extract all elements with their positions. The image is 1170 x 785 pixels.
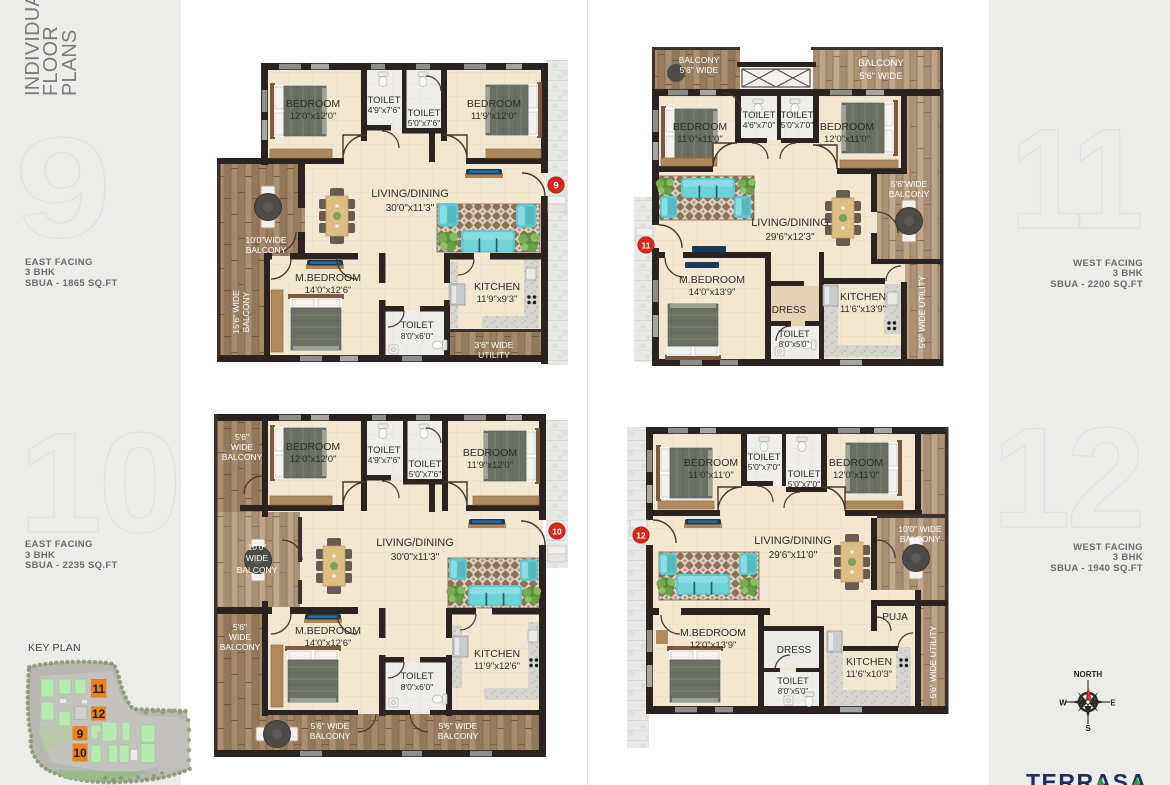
svg-text:BEDROOM: BEDROOM xyxy=(467,98,521,110)
svg-text:12'0"x11'0": 12'0"x11'0" xyxy=(824,134,870,145)
svg-text:BEDROOM: BEDROOM xyxy=(286,441,340,453)
svg-text:LIVING/DINING: LIVING/DINING xyxy=(751,217,829,229)
svg-text:11'0"x11'0": 11'0"x11'0" xyxy=(677,134,722,145)
svg-text:5'0"x7'0": 5'0"x7'0" xyxy=(748,462,780,472)
svg-text:8'0"x6'0": 8'0"x6'0" xyxy=(401,682,433,692)
svg-text:10'0" WIDE: 10'0" WIDE xyxy=(898,524,942,534)
svg-text:LIVING/DINING: LIVING/DINING xyxy=(754,535,832,547)
svg-text:8'0"x6'0": 8'0"x6'0" xyxy=(401,331,433,341)
svg-text:BALCONY: BALCONY xyxy=(237,565,278,575)
svg-text:5'6": 5'6" xyxy=(233,622,247,632)
svg-text:BALCONY: BALCONY xyxy=(889,189,930,199)
svg-text:M.BEDROOM: M.BEDROOM xyxy=(295,272,361,284)
svg-text:BALCONY: BALCONY xyxy=(858,58,904,69)
svg-text:NORTH: NORTH xyxy=(1074,670,1103,679)
svg-text:5'0"x7'6": 5'0"x7'6" xyxy=(409,469,441,479)
svg-text:5'6": 5'6" xyxy=(235,432,249,442)
svg-text:29'6"x11'0": 29'6"x11'0" xyxy=(769,550,818,561)
svg-text:UTILITY: UTILITY xyxy=(478,350,510,360)
svg-text:15'6" WIDE: 15'6" WIDE xyxy=(231,290,241,334)
svg-text:11: 11 xyxy=(92,682,105,696)
svg-text:BALCONY: BALCONY xyxy=(438,731,479,741)
svg-text:12'0"x12'0": 12'0"x12'0" xyxy=(290,111,337,122)
svg-text:14'0"x13'9": 14'0"x13'9" xyxy=(689,287,736,298)
svg-text:BALCONY: BALCONY xyxy=(679,55,720,65)
svg-text:5'6" WIDE: 5'6" WIDE xyxy=(859,71,902,82)
svg-text:LIVING/DINING: LIVING/DINING xyxy=(376,537,454,549)
svg-text:8'0"x5'0": 8'0"x5'0" xyxy=(778,687,809,696)
svg-text:PUJA: PUJA xyxy=(882,612,908,623)
svg-text:BEDROOM: BEDROOM xyxy=(684,457,738,469)
svg-text:12'0"x13'9": 12'0"x13'9" xyxy=(690,640,737,651)
svg-text:14'0"x12'6": 14'0"x12'6" xyxy=(305,638,352,649)
svg-text:KITCHEN: KITCHEN xyxy=(846,656,892,668)
svg-text:12'0"x12'0": 12'0"x12'0" xyxy=(290,454,337,465)
svg-text:BALCONY: BALCONY xyxy=(222,452,263,462)
svg-text:11'9"x12'6": 11'9"x12'6" xyxy=(474,661,520,672)
svg-text:9: 9 xyxy=(553,181,558,192)
svg-text:5'0"x7'0": 5'0"x7'0" xyxy=(781,120,813,130)
svg-text:LIVING/DINING: LIVING/DINING xyxy=(371,188,449,200)
svg-text:5'6" WIDE UTILITY: 5'6" WIDE UTILITY xyxy=(928,625,938,698)
svg-text:4'6"x7'0": 4'6"x7'0" xyxy=(743,120,775,130)
svg-text:10: 10 xyxy=(73,746,87,760)
svg-text:5'6"WIDE: 5'6"WIDE xyxy=(891,179,928,189)
svg-text:3'6" WIDE: 3'6" WIDE xyxy=(475,340,514,350)
svg-text:TOILET: TOILET xyxy=(400,320,433,331)
svg-text:11'9"x9'3": 11'9"x9'3" xyxy=(477,294,518,305)
svg-text:WIDE: WIDE xyxy=(231,442,254,452)
svg-text:BALCONY: BALCONY xyxy=(310,731,351,741)
svg-text:TOILET: TOILET xyxy=(400,671,433,682)
svg-text:12'0"x11'0": 12'0"x11'0" xyxy=(833,470,879,481)
svg-text:DRESS: DRESS xyxy=(772,305,807,316)
svg-text:WIDE: WIDE xyxy=(229,632,252,642)
svg-text:11: 11 xyxy=(642,241,651,251)
svg-text:M.BEDROOM: M.BEDROOM xyxy=(295,625,361,637)
svg-text:9: 9 xyxy=(77,727,84,741)
svg-text:11'6"x13'9": 11'6"x13'9" xyxy=(840,304,886,315)
svg-text:11'9"x12'0": 11'9"x12'0" xyxy=(467,460,513,471)
svg-text:8'0"x5'0": 8'0"x5'0" xyxy=(779,340,810,349)
svg-text:KITCHEN: KITCHEN xyxy=(474,648,520,660)
svg-text:BALCONY: BALCONY xyxy=(900,534,941,544)
svg-text:TERRASA: TERRASA xyxy=(1026,769,1148,785)
svg-text:S: S xyxy=(1085,724,1091,733)
svg-text:TOILET: TOILET xyxy=(778,329,810,339)
svg-text:11'0"x11'0": 11'0"x11'0" xyxy=(688,470,733,481)
svg-text:29'6"x12'3": 29'6"x12'3" xyxy=(765,232,815,243)
svg-text:BEDROOM: BEDROOM xyxy=(463,447,517,459)
svg-text:TOILET: TOILET xyxy=(777,676,809,686)
svg-text:BALCONY: BALCONY xyxy=(246,245,287,255)
svg-text:5'0"x7'0": 5'0"x7'0" xyxy=(788,479,820,489)
svg-text:5'0"x7'6": 5'0"x7'6" xyxy=(408,118,440,128)
svg-text:M.BEDROOM: M.BEDROOM xyxy=(679,274,745,286)
svg-text:5'6" WIDE: 5'6" WIDE xyxy=(439,721,478,731)
svg-text:12: 12 xyxy=(92,707,106,721)
svg-text:M.BEDROOM: M.BEDROOM xyxy=(680,627,746,639)
svg-text:BALCONY: BALCONY xyxy=(241,291,251,332)
svg-text:DRESS: DRESS xyxy=(777,645,812,656)
svg-text:E: E xyxy=(1110,699,1116,708)
svg-text:10: 10 xyxy=(552,527,562,537)
svg-text:30'0"x11'3": 30'0"x11'3" xyxy=(386,203,435,214)
svg-text:11'6"x10'3": 11'6"x10'3" xyxy=(846,669,892,680)
svg-text:BEDROOM: BEDROOM xyxy=(829,457,883,469)
svg-text:11'9"x12'0": 11'9"x12'0" xyxy=(471,111,517,122)
svg-text:KITCHEN: KITCHEN xyxy=(840,291,886,303)
svg-text:10'0"WIDE: 10'0"WIDE xyxy=(245,235,286,245)
svg-text:WIDE: WIDE xyxy=(246,553,269,563)
svg-text:10'0": 10'0" xyxy=(248,542,267,552)
svg-text:W: W xyxy=(1059,699,1067,708)
svg-text:30'0"x11'3": 30'0"x11'3" xyxy=(391,552,440,563)
svg-text:KITCHEN: KITCHEN xyxy=(474,281,520,293)
svg-text:BALCONY: BALCONY xyxy=(220,642,261,652)
svg-text:5'6" WIDE: 5'6" WIDE xyxy=(311,721,350,731)
svg-text:12: 12 xyxy=(636,531,646,541)
svg-text:BEDROOM: BEDROOM xyxy=(286,98,340,110)
svg-text:BEDROOM: BEDROOM xyxy=(820,121,874,133)
svg-text:4'9"x7'6": 4'9"x7'6" xyxy=(368,455,400,465)
svg-text:14'0"x12'6": 14'0"x12'6" xyxy=(305,285,352,296)
svg-text:BEDROOM: BEDROOM xyxy=(673,121,727,133)
svg-text:5'6" WIDE UTILITY: 5'6" WIDE UTILITY xyxy=(917,275,927,348)
svg-text:5'6" WIDE: 5'6" WIDE xyxy=(680,65,719,75)
svg-text:4'9"x7'6": 4'9"x7'6" xyxy=(368,105,400,115)
